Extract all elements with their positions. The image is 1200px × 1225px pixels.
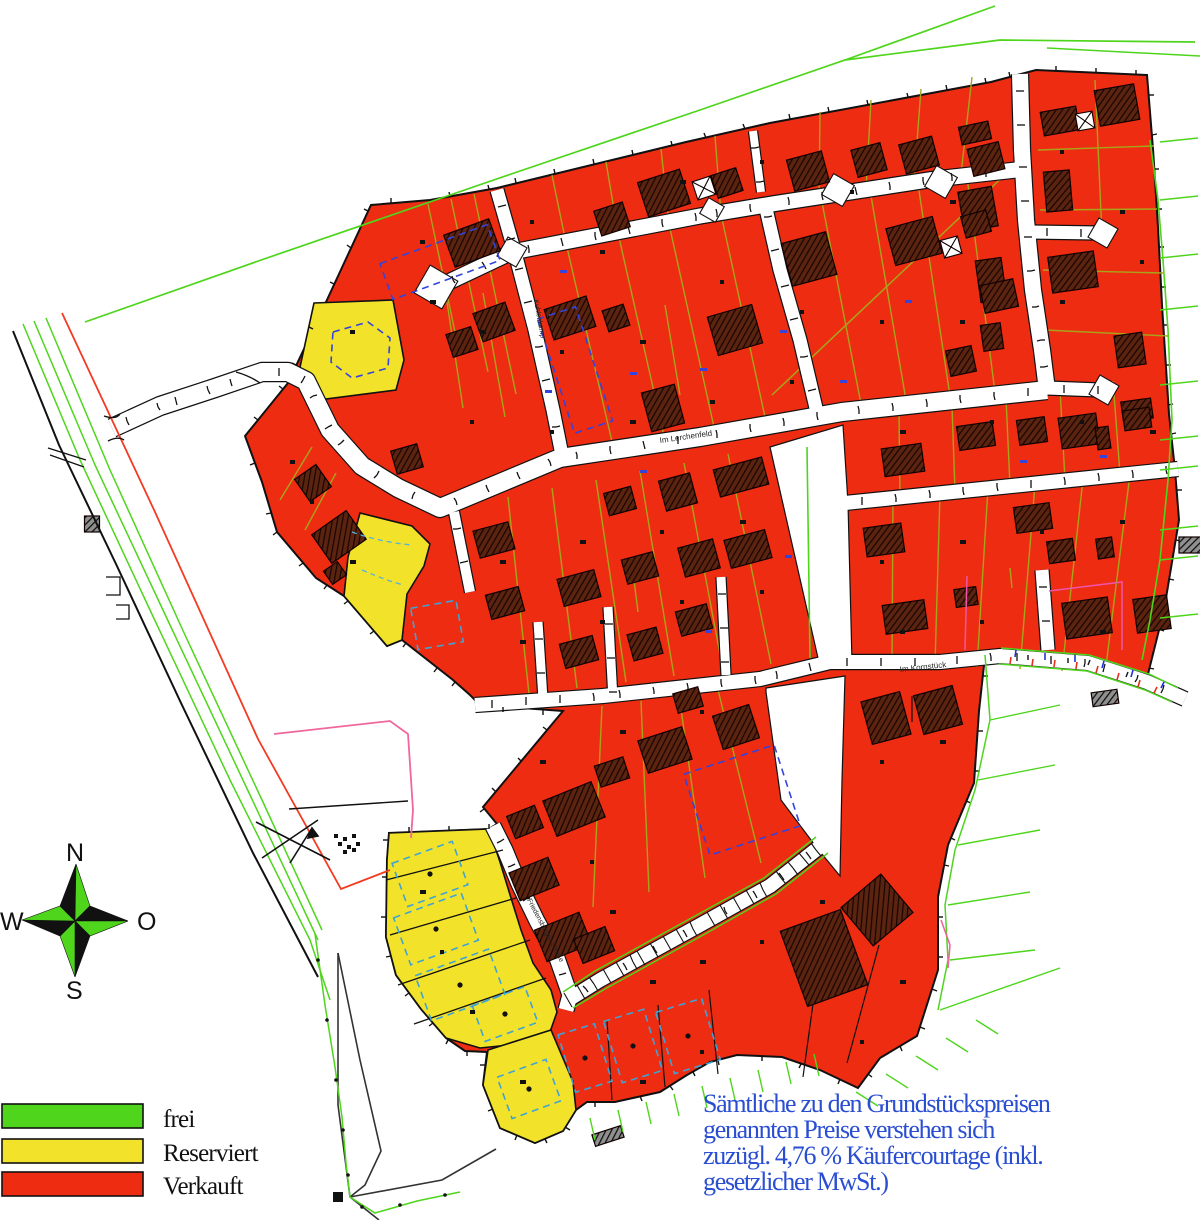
svg-text:gesetzlicher MwSt.): gesetzlicher MwSt.) bbox=[703, 1167, 888, 1196]
svg-text:genannten Preise verstehen sic: genannten Preise verstehen sich bbox=[703, 1115, 995, 1144]
svg-text:O: O bbox=[137, 908, 156, 936]
svg-text:N: N bbox=[66, 839, 84, 867]
svg-text:Verkauft: Verkauft bbox=[163, 1173, 244, 1200]
svg-text:zuzügl. 4,76 % Käufercourtage: zuzügl. 4,76 % Käufercourtage (inkl. bbox=[703, 1141, 1042, 1170]
svg-text:S: S bbox=[66, 977, 83, 1005]
svg-text:frei: frei bbox=[163, 1106, 195, 1133]
svg-text:Reserviert: Reserviert bbox=[163, 1140, 259, 1167]
svg-text:Sämtliche zu den Grundstückspr: Sämtliche zu den Grundstückspreisen bbox=[703, 1089, 1051, 1118]
svg-text:W: W bbox=[0, 908, 24, 936]
